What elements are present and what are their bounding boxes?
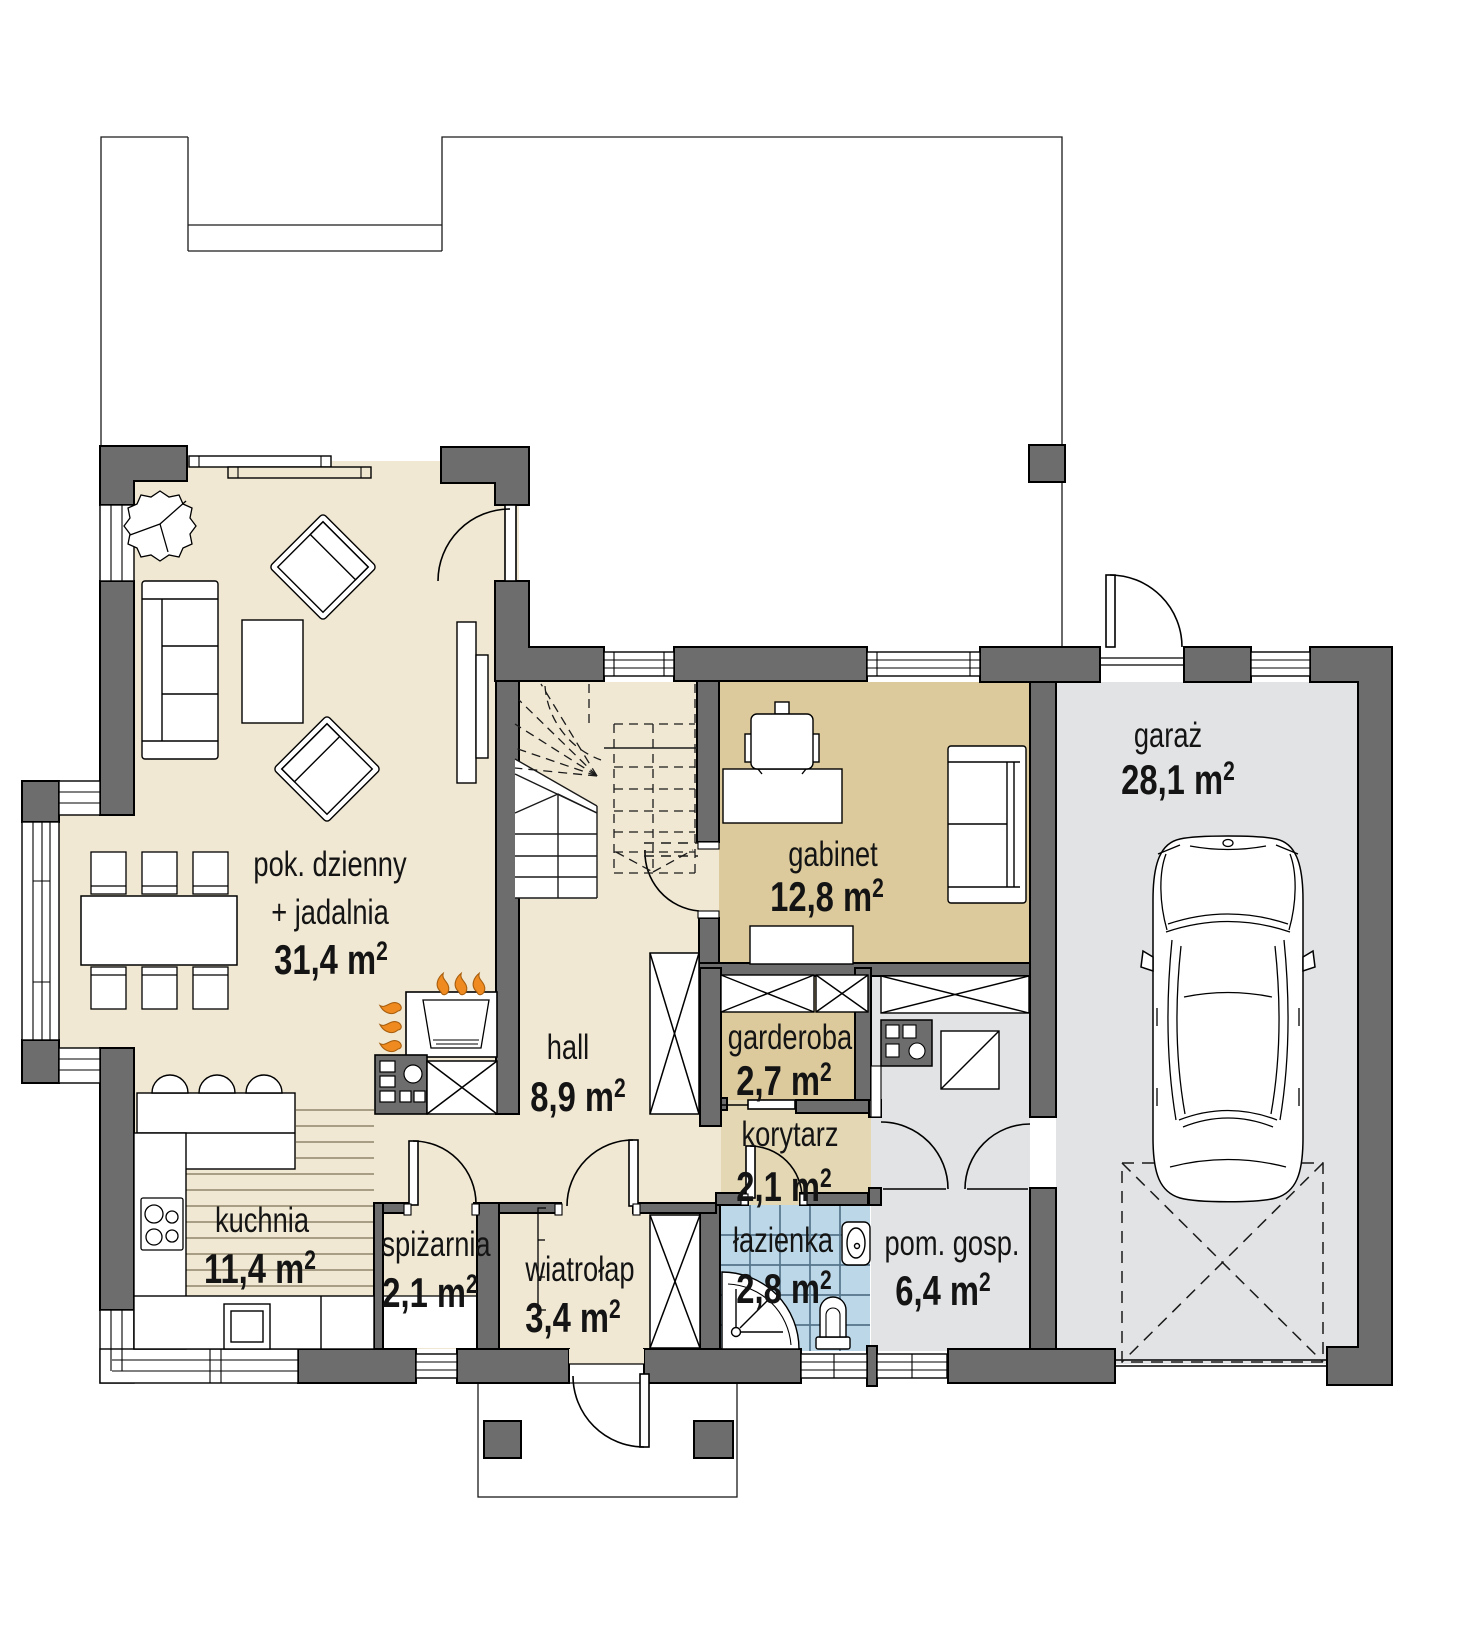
- svg-text:garderoba: garderoba: [728, 1018, 853, 1057]
- svg-text:2,1 m2: 2,1 m2: [736, 1163, 831, 1210]
- svg-text:2,8 m2: 2,8 m2: [736, 1265, 831, 1312]
- svg-text:gabinet: gabinet: [788, 835, 878, 874]
- svg-text:garaż: garaż: [1134, 716, 1202, 755]
- svg-text:korytarz: korytarz: [741, 1115, 838, 1154]
- svg-text:wiatrołap: wiatrołap: [525, 1250, 635, 1289]
- svg-text:2,1 m2: 2,1 m2: [382, 1269, 477, 1316]
- svg-text:+ jadalnia: + jadalnia: [271, 893, 389, 932]
- svg-text:pok. dzienny: pok. dzienny: [253, 845, 406, 884]
- svg-text:28,1 m2: 28,1 m2: [1121, 756, 1235, 803]
- svg-text:3,4 m2: 3,4 m2: [525, 1294, 620, 1341]
- svg-text:spiżarnia: spiżarnia: [381, 1225, 491, 1264]
- svg-text:pom. gosp.: pom. gosp.: [884, 1224, 1019, 1263]
- svg-text:6,4 m2: 6,4 m2: [895, 1267, 990, 1314]
- svg-text:2,7 m2: 2,7 m2: [736, 1057, 831, 1104]
- svg-text:łazienka: łazienka: [733, 1221, 834, 1260]
- svg-text:11,4 m2: 11,4 m2: [204, 1245, 316, 1292]
- svg-text:kuchnia: kuchnia: [215, 1201, 310, 1240]
- svg-text:12,8 m2: 12,8 m2: [770, 873, 884, 920]
- svg-text:hall: hall: [547, 1028, 589, 1067]
- svg-text:31,4 m2: 31,4 m2: [274, 936, 388, 983]
- svg-text:8,9 m2: 8,9 m2: [530, 1073, 625, 1120]
